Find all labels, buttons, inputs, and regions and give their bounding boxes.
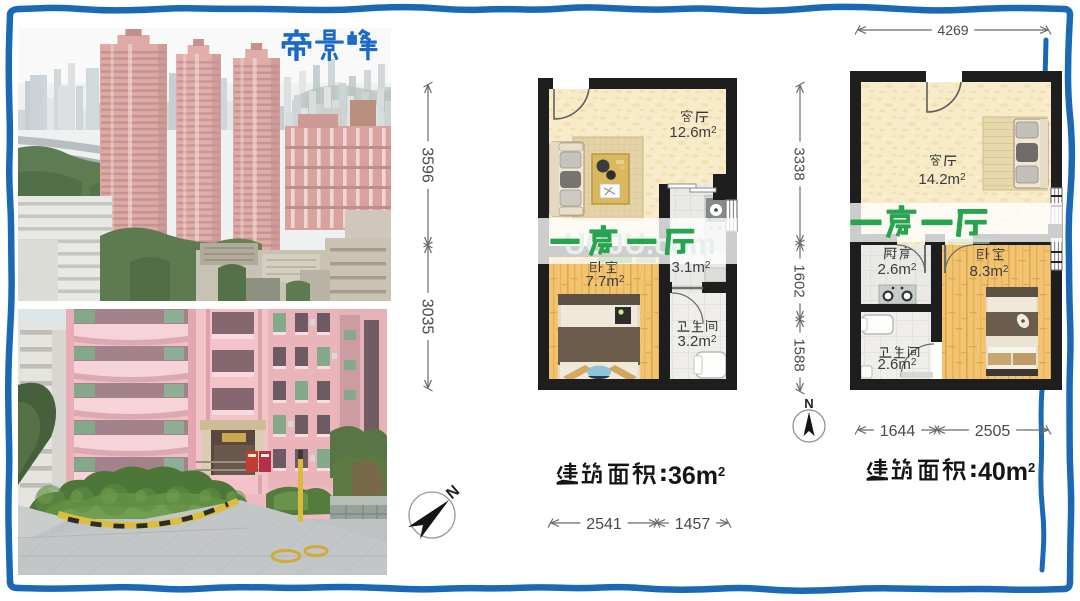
svg-text:2541: 2541 [586,516,622,533]
svg-text:1588: 1588 [791,338,808,371]
svg-text:N: N [804,396,813,411]
svg-text:1602: 1602 [791,264,808,297]
svg-text:1644: 1644 [880,423,916,440]
svg-text:12.6m2: 12.6m2 [669,124,717,141]
svg-text:3596: 3596 [418,147,435,183]
svg-text:14.2m2: 14.2m2 [918,171,966,188]
svg-text:1457: 1457 [675,516,711,533]
svg-text:40m2: 40m2 [978,458,1035,486]
svg-text:2505: 2505 [975,423,1011,440]
svg-text:3035: 3035 [418,299,435,335]
svg-text:3338: 3338 [791,147,808,180]
svg-text:36m2: 36m2 [668,462,725,490]
svg-text:4269: 4269 [937,22,968,38]
